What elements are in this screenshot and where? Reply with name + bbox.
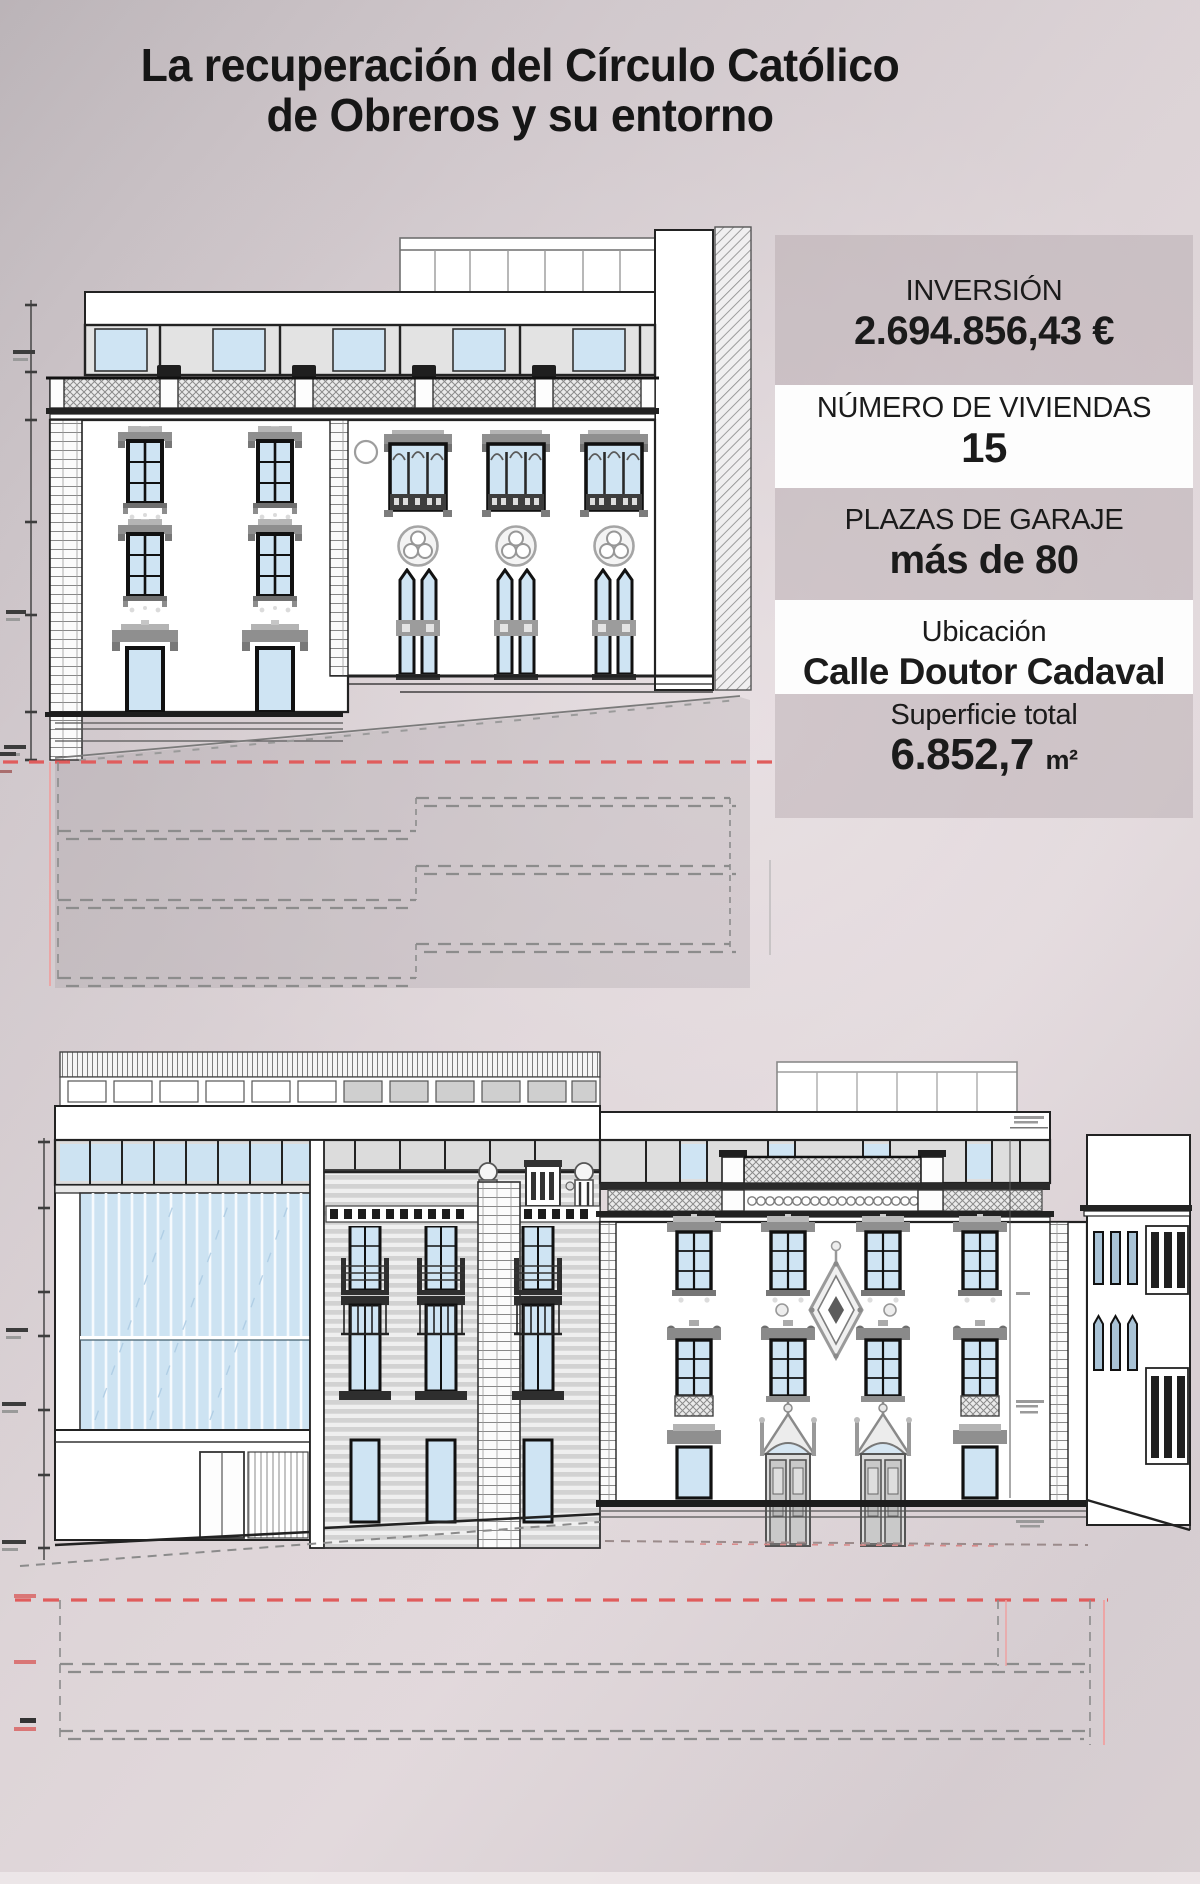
viviendas-label: NÚMERO DE VIVIENDAS bbox=[817, 392, 1151, 425]
top-elevation-drawing bbox=[0, 227, 778, 988]
new-building-parapet bbox=[55, 1106, 600, 1140]
facade-main-wall bbox=[600, 1222, 1087, 1502]
facade-quoins-left bbox=[600, 1222, 616, 1502]
page-title-line1: La recuperación del Círculo Católico bbox=[16, 40, 1025, 90]
underground-garage-outline-bottom bbox=[14, 1594, 1108, 1745]
clerestory-row bbox=[60, 1077, 600, 1106]
page-title-line2: de Obreros y su entorno bbox=[16, 90, 1025, 140]
panel-row-garaje: PLAZAS DE GARAJE más de 80 bbox=[775, 488, 1193, 600]
superficie-number: 6.852,7 bbox=[890, 730, 1033, 779]
right-wing bbox=[1080, 1135, 1192, 1530]
garaje-label: PLAZAS DE GARAJE bbox=[845, 504, 1124, 537]
pilaster-quoins-mid bbox=[330, 420, 348, 676]
dimension-line-left-bottom bbox=[38, 1138, 50, 1560]
ubicacion-value: Calle Doutor Cadaval bbox=[803, 649, 1165, 695]
bottom-elevation-drawing bbox=[2, 1052, 1192, 1745]
panel-row-viviendas: NÚMERO DE VIVIENDAS 15 bbox=[775, 385, 1193, 488]
dimension-line-left bbox=[25, 300, 37, 762]
facade-quoins-right bbox=[1050, 1222, 1068, 1502]
inversion-label: INVERSIÓN bbox=[906, 275, 1063, 308]
garaje-value: más de 80 bbox=[890, 537, 1079, 583]
rooftop-glass-box bbox=[400, 238, 655, 292]
dentil-row bbox=[326, 1206, 600, 1222]
panel-row-superficie: Superficie total 6.852,7 m² bbox=[775, 694, 1193, 818]
stair-tower bbox=[655, 230, 713, 690]
ubicacion-label: Ubicación bbox=[922, 616, 1047, 649]
dimension-labels-bottom bbox=[2, 1328, 28, 1551]
panel-row-ubicacion: Ubicación Calle Doutor Cadaval bbox=[775, 600, 1193, 694]
page-title: La recuperación del Círculo Católico de … bbox=[16, 40, 1025, 140]
inversion-value: 2.694.856,43 € bbox=[854, 308, 1114, 354]
panel-row-inversion: INVERSIÓN 2.694.856,43 € bbox=[775, 235, 1193, 385]
modern-glass-building bbox=[55, 1185, 310, 1540]
facade-parapet-band bbox=[600, 1112, 1050, 1140]
new-building-roof-band bbox=[60, 1052, 600, 1077]
circulo-catolico-facade bbox=[596, 1062, 1088, 1546]
superficie-unit: m² bbox=[1046, 745, 1078, 775]
corner-quoins-left bbox=[50, 420, 82, 712]
stone-tower-quoins bbox=[478, 1182, 520, 1548]
viviendas-value: 15 bbox=[961, 425, 1007, 471]
superficie-value: 6.852,7 m² bbox=[890, 732, 1077, 783]
party-wall-hatch bbox=[715, 227, 751, 690]
parapet-band bbox=[85, 292, 655, 325]
superficie-label: Superficie total bbox=[890, 699, 1077, 732]
facade-base-bottom bbox=[596, 1500, 1088, 1517]
corner-quoins-left-base bbox=[50, 712, 82, 760]
stone-building bbox=[324, 1160, 600, 1548]
pilaster-divider bbox=[310, 1140, 324, 1548]
